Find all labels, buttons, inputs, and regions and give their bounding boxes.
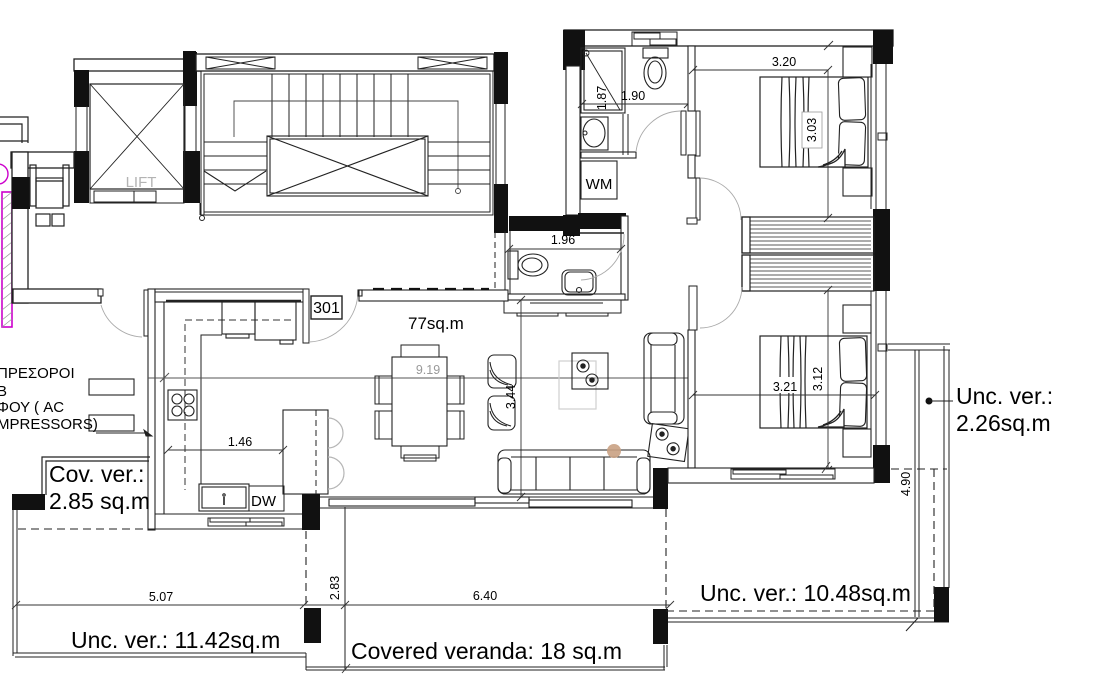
svg-text:Β: Β (0, 383, 7, 400)
svg-text:3.20: 3.20 (772, 55, 796, 69)
svg-text:2.85 sq.m: 2.85 sq.m (49, 488, 150, 514)
svg-text:DW: DW (251, 493, 277, 510)
svg-text:2.26sq.m: 2.26sq.m (956, 410, 1051, 436)
svg-text:Covered veranda: 18 sq.m: Covered veranda: 18 sq.m (351, 638, 622, 664)
svg-text:1.96: 1.96 (551, 233, 575, 247)
svg-text:77sq.m: 77sq.m (408, 314, 464, 333)
svg-text:Cov. ver.:: Cov. ver.: (49, 461, 144, 487)
svg-text:2.83: 2.83 (328, 576, 342, 600)
svg-text:Unc. ver.: 10.48sq.m: Unc. ver.: 10.48sq.m (700, 580, 911, 606)
svg-text:MPRESSORS): MPRESSORS) (0, 416, 98, 433)
svg-text:ΦΟΥ ( AC: ΦΟΥ ( AC (0, 399, 64, 416)
svg-text:9.19: 9.19 (416, 363, 440, 377)
svg-text:LIFT: LIFT (126, 174, 157, 191)
svg-text:4.90: 4.90 (899, 472, 913, 496)
svg-text:3.44: 3.44 (504, 385, 518, 409)
svg-text:3.21: 3.21 (773, 380, 797, 394)
svg-text:6.40: 6.40 (473, 589, 497, 603)
svg-text:1.90: 1.90 (621, 89, 645, 103)
svg-text:ΠΡΕΣΟΡΟΙ: ΠΡΕΣΟΡΟΙ (0, 365, 75, 382)
svg-text:301: 301 (313, 300, 340, 317)
svg-text:Unc. ver.:: Unc. ver.: (956, 383, 1053, 409)
svg-text:1.46: 1.46 (228, 435, 252, 449)
svg-text:WM: WM (586, 176, 613, 193)
svg-text:5.07: 5.07 (149, 590, 173, 604)
svg-text:3.12: 3.12 (811, 367, 825, 391)
svg-text:Unc. ver.: 11.42sq.m: Unc. ver.: 11.42sq.m (71, 627, 280, 653)
svg-text:3.03: 3.03 (805, 118, 819, 142)
svg-text:1.87: 1.87 (595, 86, 609, 110)
